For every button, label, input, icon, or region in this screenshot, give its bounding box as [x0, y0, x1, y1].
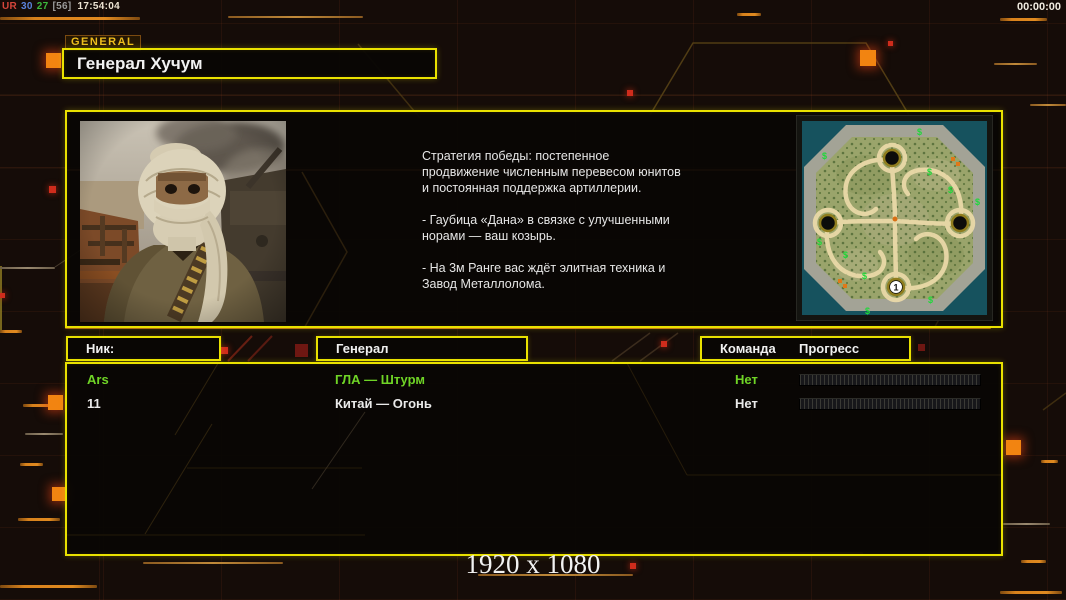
deco-square	[295, 344, 308, 357]
deco-dash	[1030, 104, 1066, 106]
supply-icon: $	[917, 127, 922, 137]
deco-dash	[1000, 591, 1062, 594]
player-nick: 11	[87, 396, 101, 411]
deco-dash	[20, 463, 43, 466]
deco-dash	[143, 562, 283, 564]
deco-square	[46, 53, 61, 68]
player-general: ГЛА — Штурм	[335, 372, 425, 387]
deco-dash	[25, 433, 63, 435]
deco-square	[48, 395, 63, 410]
map-preview: 1 $ $ $ $ $ $ $ $ $ $	[796, 115, 993, 321]
supply-icon: $	[975, 197, 980, 207]
general-portrait	[80, 121, 286, 322]
perf-frametime: 27	[37, 1, 49, 12]
deco-dash	[994, 63, 1037, 65]
start-position-1: 1	[893, 283, 898, 293]
perf-fps: 30	[21, 1, 33, 12]
player-nick: Ars	[87, 372, 109, 387]
supply-icon: $	[865, 306, 870, 316]
player-general: Китай — Огонь	[335, 396, 432, 411]
deco-square	[918, 344, 925, 351]
deco-square	[661, 341, 667, 347]
column-header-nick: Ник:	[66, 336, 221, 361]
supply-icon: $	[928, 295, 933, 305]
deco-square	[221, 347, 228, 354]
deco-square	[49, 186, 56, 193]
briefing-paragraph: Стратегия победы: постепенное продвижени…	[422, 148, 684, 196]
supply-icon: $	[817, 237, 822, 247]
deco-dash	[0, 585, 97, 588]
briefing-panel: Стратегия победы: постепенное продвижени…	[65, 110, 1003, 328]
match-timer: 00:00:00	[1017, 1, 1061, 13]
deco-dash	[1041, 460, 1058, 463]
load-progress-bar	[799, 374, 981, 386]
player-roster-panel: Ars ГЛА — Штурм Нет 11 Китай — Огонь Нет	[65, 362, 1003, 556]
supply-icon: $	[822, 151, 827, 161]
deco-dash	[737, 13, 761, 16]
deco-dash	[18, 518, 60, 521]
deco-square	[52, 487, 66, 501]
player-row: 11 Китай — Огонь Нет	[67, 394, 1001, 416]
general-name-box: Генерал Хучум	[62, 48, 437, 79]
resolution-label: 1920 x 1080	[383, 549, 683, 580]
strategy-briefing: Стратегия победы: постепенное продвижени…	[422, 148, 684, 308]
player-team: Нет	[735, 396, 758, 411]
roster-decor	[67, 364, 1001, 554]
deco-dash	[228, 16, 363, 18]
deco-square	[0, 293, 5, 298]
supply-icon: $	[862, 271, 867, 281]
player-team: Нет	[735, 372, 758, 387]
deco-square	[888, 41, 893, 46]
deco-dash	[1021, 560, 1046, 563]
supply-icon: $	[927, 167, 932, 177]
perf-bracket: [56]	[53, 1, 72, 12]
team-header-label: Команда	[720, 338, 776, 359]
column-header-general: Генерал	[316, 336, 528, 361]
deco-dash	[0, 330, 22, 333]
deco-dash	[1000, 18, 1047, 21]
player-row: Ars ГЛА — Штурм Нет	[67, 370, 1001, 392]
deco-square	[1006, 440, 1021, 455]
loading-screen: UR3027[56]17:54:04 00:00:00 GENERAL Гене…	[0, 0, 1066, 600]
briefing-paragraph: - На 3м Ранге вас ждёт элитная техника и…	[422, 260, 684, 292]
supply-icon: $	[948, 185, 953, 195]
column-header-team-progress: Команда Прогресс	[700, 336, 911, 361]
nick-header-label: Ник:	[86, 338, 114, 359]
load-progress-bar	[799, 398, 981, 410]
progress-header-label: Прогресс	[799, 338, 859, 359]
deco-dash	[0, 17, 140, 20]
general-name: Генерал Хучум	[64, 50, 435, 77]
general-header-label: Генерал	[336, 338, 388, 359]
performance-overlay: UR3027[56]17:54:04	[2, 1, 124, 12]
perf-label: UR	[2, 1, 17, 12]
deco-dash	[0, 267, 55, 269]
perf-clock: 17:54:04	[78, 1, 120, 12]
supply-icon: $	[843, 250, 848, 260]
deco-square	[860, 50, 876, 66]
deco-dash	[1003, 523, 1050, 525]
briefing-paragraph: - Гаубица «Дана» в связке с улучшенными …	[422, 212, 684, 244]
deco-square	[627, 90, 633, 96]
